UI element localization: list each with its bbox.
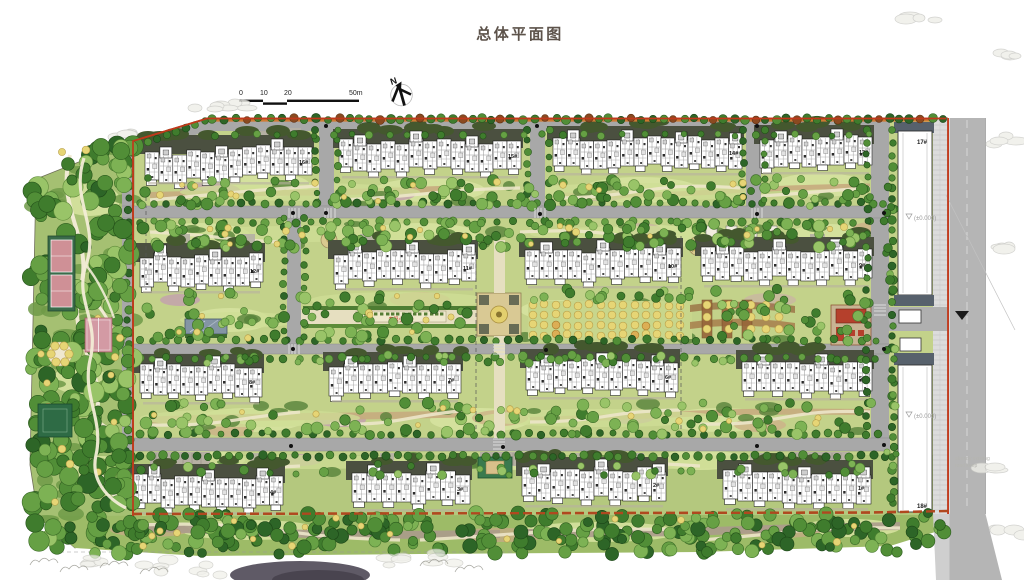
- svg-text:50m: 50m: [349, 90, 363, 97]
- svg-text:16#: 16#: [299, 160, 308, 166]
- svg-text:(±0.000): (±0.000): [914, 216, 936, 222]
- svg-text:1#: 1#: [858, 486, 864, 492]
- svg-text:10#: 10#: [668, 264, 677, 270]
- svg-text:4#: 4#: [270, 490, 276, 496]
- svg-text:20: 20: [284, 90, 292, 97]
- svg-text:7#: 7#: [448, 378, 454, 384]
- svg-text:8#: 8#: [249, 380, 255, 386]
- svg-text:总体平面图: 总体平面图: [476, 25, 564, 43]
- svg-text:17#: 17#: [917, 140, 928, 146]
- svg-text:2#: 2#: [653, 483, 659, 489]
- svg-text:3#: 3#: [457, 487, 463, 493]
- svg-text:12#: 12#: [250, 269, 259, 275]
- svg-text:6#: 6#: [665, 375, 671, 381]
- svg-text:road keep: road keep: [955, 463, 977, 469]
- svg-text:(±0.000): (±0.000): [914, 414, 936, 420]
- svg-text:already existing: already existing: [955, 456, 990, 462]
- svg-text:0: 0: [239, 90, 243, 97]
- svg-text:15#: 15#: [508, 154, 517, 160]
- svg-text:10: 10: [260, 90, 268, 97]
- svg-text:11#: 11#: [463, 266, 472, 272]
- svg-text:14#: 14#: [729, 151, 738, 157]
